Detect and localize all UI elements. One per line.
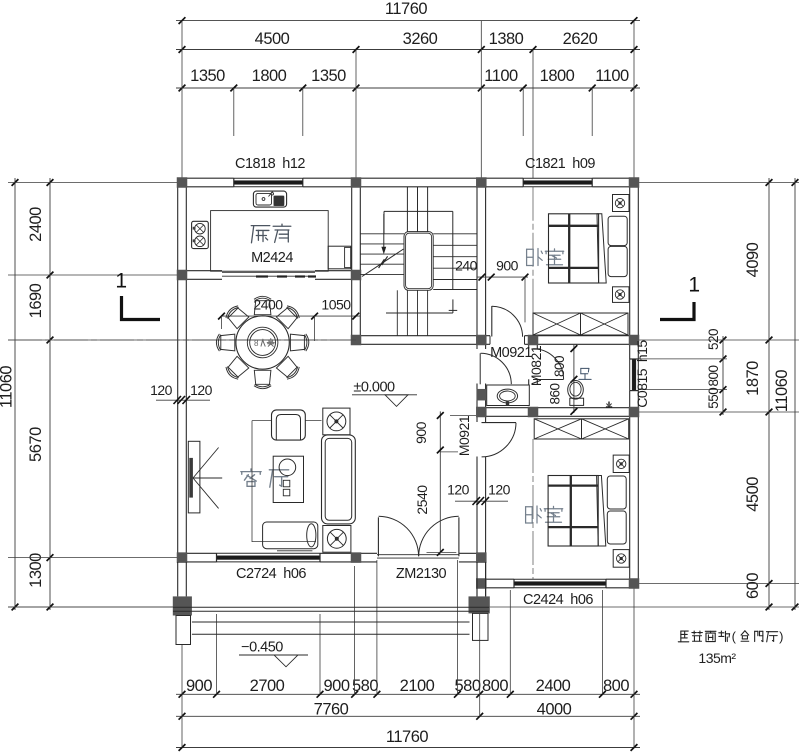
svg-text:3260: 3260 (403, 30, 438, 48)
svg-text:1350: 1350 (311, 67, 346, 85)
svg-text:4500: 4500 (255, 30, 290, 48)
svg-text:11760: 11760 (386, 728, 428, 746)
svg-text:ZM2130: ZM2130 (396, 566, 447, 582)
svg-text:±0.000: ±0.000 (353, 379, 395, 395)
svg-text:C1818 h12: C1818 h12 (235, 156, 305, 172)
svg-text:2700: 2700 (250, 677, 285, 695)
svg-text:1800: 1800 (252, 67, 287, 85)
svg-text:800: 800 (482, 677, 508, 695)
svg-text:4500: 4500 (744, 477, 762, 512)
svg-text:M0921: M0921 (490, 345, 532, 361)
svg-text:2540: 2540 (414, 485, 430, 515)
svg-text:860: 860 (548, 383, 563, 404)
svg-text:800: 800 (552, 356, 567, 377)
svg-text:120: 120 (190, 382, 213, 398)
svg-text:1300: 1300 (27, 553, 45, 588)
svg-text:900: 900 (496, 258, 519, 274)
svg-text:600: 600 (744, 573, 762, 599)
svg-text:11060: 11060 (773, 370, 791, 412)
svg-text:2100: 2100 (400, 677, 435, 695)
svg-text:900: 900 (186, 677, 212, 695)
svg-text:1380: 1380 (489, 30, 524, 48)
svg-text:135m²: 135m² (698, 650, 736, 666)
svg-text:11060: 11060 (0, 366, 16, 408)
svg-text:1800: 1800 (540, 67, 575, 85)
svg-text:2400: 2400 (27, 207, 45, 242)
svg-text:800: 800 (603, 677, 629, 695)
svg-text:C1821 h09: C1821 h09 (525, 156, 595, 172)
svg-text:1050: 1050 (321, 297, 351, 313)
svg-text:): ) (779, 629, 783, 644)
svg-text:2400: 2400 (536, 677, 571, 695)
svg-text:C2724 h06: C2724 h06 (236, 566, 306, 582)
svg-text:1100: 1100 (484, 67, 518, 85)
svg-text:4090: 4090 (744, 242, 762, 277)
svg-text:800: 800 (706, 365, 721, 386)
svg-text:1: 1 (115, 270, 126, 293)
svg-text:M2424: M2424 (251, 250, 293, 266)
svg-text:2620: 2620 (563, 30, 598, 48)
svg-text:120: 120 (488, 482, 511, 498)
svg-text:580: 580 (352, 677, 378, 695)
svg-text:240: 240 (455, 258, 478, 274)
svg-text:4000: 4000 (537, 701, 572, 719)
svg-text:−0.450: −0.450 (241, 639, 283, 655)
svg-text:11760: 11760 (385, 0, 427, 18)
svg-text:1100: 1100 (595, 67, 629, 85)
svg-text:C2424 h06: C2424 h06 (523, 592, 593, 608)
svg-text:C0815 h15: C0815 h15 (634, 340, 650, 408)
svg-text:580: 580 (454, 677, 480, 695)
svg-text:900: 900 (413, 421, 429, 444)
svg-text:900: 900 (323, 677, 349, 695)
svg-text:M0921: M0921 (456, 415, 472, 456)
svg-text:7760: 7760 (314, 701, 349, 719)
svg-text:550: 550 (706, 388, 721, 409)
svg-text:520: 520 (706, 329, 721, 350)
svg-text:120: 120 (150, 382, 173, 398)
svg-text:1690: 1690 (27, 283, 45, 318)
svg-text:5670: 5670 (27, 427, 45, 462)
svg-text:1350: 1350 (190, 67, 225, 85)
svg-text:120: 120 (447, 482, 470, 498)
svg-text:1: 1 (688, 274, 699, 297)
svg-text:1870: 1870 (744, 361, 762, 396)
svg-text:M0821: M0821 (528, 345, 544, 386)
